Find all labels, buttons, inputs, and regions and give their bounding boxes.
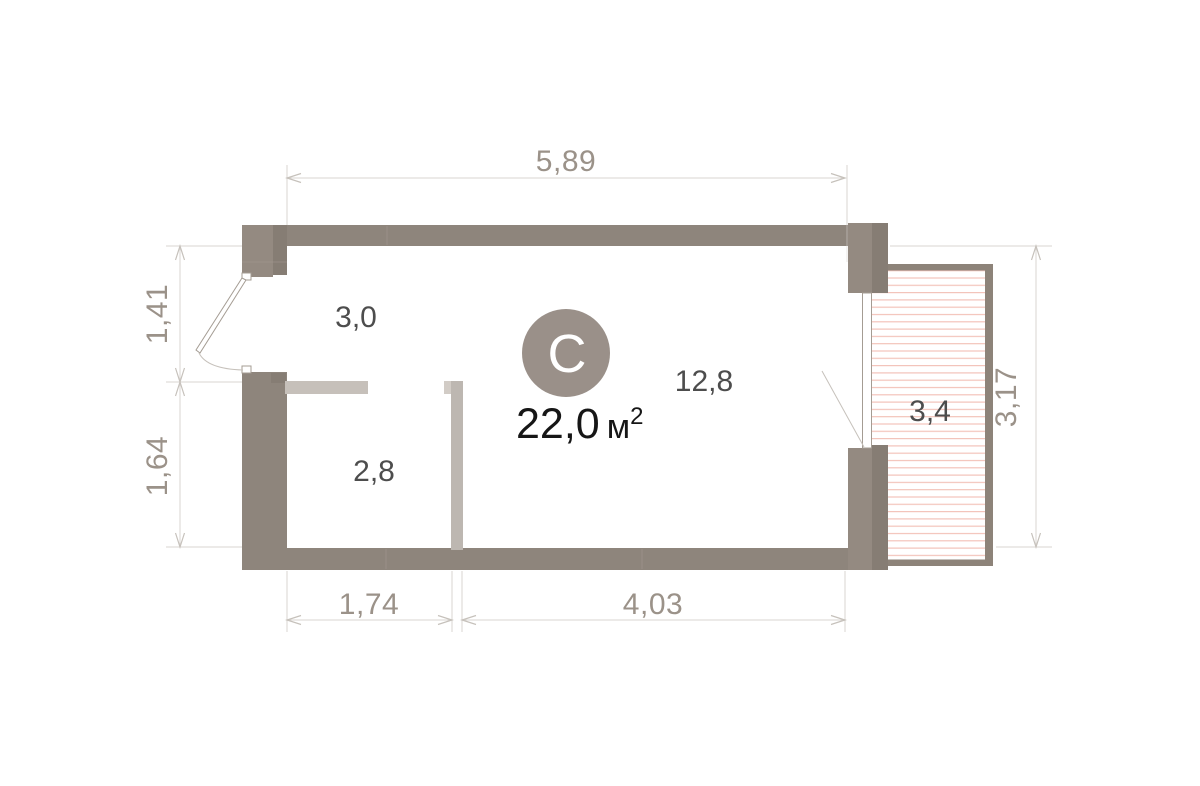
room-label-hall: 3,0 — [335, 301, 377, 334]
dimension-label-top: 5,89 — [536, 145, 596, 178]
total-area-unit: м — [607, 408, 630, 446]
door-jamb-bottom — [242, 366, 251, 373]
unit-type-letter: C — [548, 324, 587, 384]
wall-top-left-corner-inner — [273, 225, 287, 275]
floorplan-canvas: 5,89 1,74 4,03 1,41 1,64 3,17 3,0 2,8 12… — [0, 0, 1200, 786]
wall-top-left-corner — [242, 225, 273, 277]
wall-left-notch — [271, 373, 286, 383]
room-label-balcony: 3,4 — [909, 395, 951, 428]
partition-notch — [444, 381, 452, 394]
partition-horizontal — [285, 381, 368, 394]
wall-left-lower — [242, 372, 287, 570]
total-area-label: 22,0м2 — [516, 400, 643, 448]
dimension-label-right: 3,17 — [990, 367, 1023, 427]
total-area-value: 22,0 — [516, 400, 600, 448]
wall-right-upper — [848, 223, 872, 293]
dimension-label-bottom-right: 4,03 — [623, 588, 683, 621]
entry-door — [196, 273, 251, 373]
balcony-window — [863, 293, 872, 448]
balcony-door-swing-line — [822, 371, 864, 447]
partition-vertical — [451, 381, 463, 550]
wall-right-lower-outer — [872, 445, 888, 570]
wall-top — [243, 225, 848, 246]
door-swing-arc — [199, 353, 243, 370]
room-label-living-room: 12,8 — [675, 365, 733, 398]
balcony-top-rail — [886, 264, 993, 271]
balcony-bottom-rail — [886, 560, 993, 567]
floorplan-drawing: 5,89 1,74 4,03 1,41 1,64 3,17 3,0 2,8 12… — [0, 0, 1200, 786]
dimension-label-bottom-left: 1,74 — [339, 588, 399, 621]
dimension-label-left-upper: 1,41 — [141, 284, 174, 344]
wall-right-upper-outer — [872, 223, 888, 293]
total-area-superscript: 2 — [630, 403, 643, 430]
wall-bottom — [242, 548, 848, 570]
door-leaf — [196, 278, 246, 353]
wall-right-lower — [848, 448, 872, 570]
room-label-bathroom: 2,8 — [353, 455, 395, 488]
dimension-label-left-lower: 1,64 — [141, 436, 174, 496]
